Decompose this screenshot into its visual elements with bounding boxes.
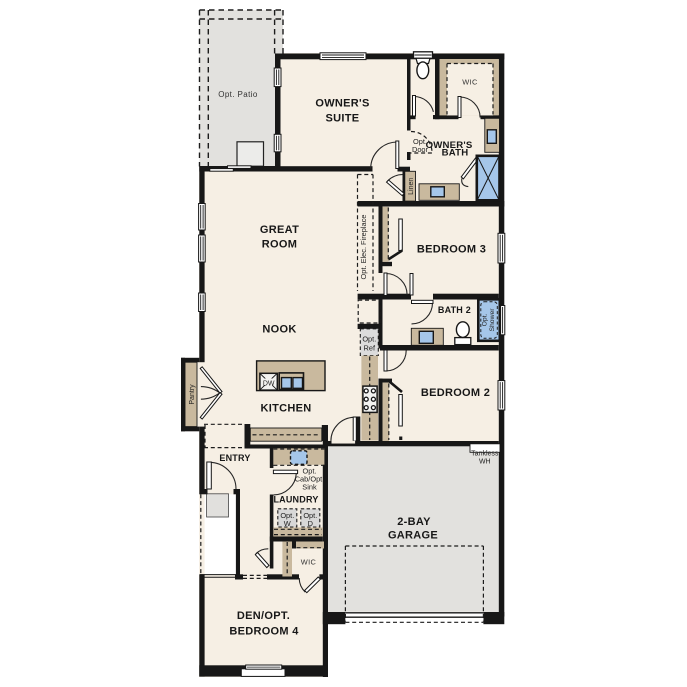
svg-text:ROOM: ROOM (262, 239, 297, 251)
svg-text:BEDROOM 4: BEDROOM 4 (229, 626, 299, 638)
svg-text:Ref: Ref (364, 344, 376, 353)
svg-text:Tankless: Tankless (471, 450, 499, 457)
svg-text:GREAT: GREAT (260, 224, 299, 236)
svg-text:Shower: Shower (489, 308, 496, 332)
svg-text:DW: DW (263, 380, 275, 387)
svg-text:OWNER'S: OWNER'S (315, 98, 369, 110)
svg-text:Door: Door (412, 145, 429, 154)
svg-text:NOOK: NOOK (262, 324, 296, 336)
svg-text:W: W (284, 519, 291, 528)
svg-text:Linen: Linen (408, 178, 415, 195)
svg-text:Sink: Sink (302, 483, 317, 492)
svg-text:DEN/OPT.: DEN/OPT. (237, 610, 290, 622)
svg-text:WIC: WIC (462, 78, 478, 87)
svg-text:Pantry: Pantry (189, 384, 196, 405)
svg-text:GARAGE: GARAGE (388, 530, 438, 542)
svg-text:Opt.: Opt. (362, 335, 376, 344)
svg-text:KITCHEN: KITCHEN (261, 403, 312, 415)
svg-text:BEDROOM 3: BEDROOM 3 (417, 243, 486, 255)
svg-text:Opt. Patio: Opt. Patio (218, 90, 258, 99)
svg-text:BATH 2: BATH 2 (438, 305, 471, 315)
svg-text:D: D (308, 519, 313, 528)
svg-text:SUITE: SUITE (326, 113, 360, 125)
svg-text:WH: WH (479, 458, 491, 465)
svg-text:ENTRY: ENTRY (219, 453, 250, 463)
svg-text:LAUNDRY: LAUNDRY (273, 495, 318, 505)
svg-text:BEDROOM 2: BEDROOM 2 (421, 387, 490, 399)
svg-text:Opt. Elec. Fireplace: Opt. Elec. Fireplace (359, 215, 368, 280)
svg-text:WIC: WIC (301, 558, 317, 567)
svg-text:BATH: BATH (442, 147, 469, 158)
svg-text:Opt.: Opt. (482, 313, 489, 326)
svg-text:2-BAY: 2-BAY (397, 516, 431, 528)
